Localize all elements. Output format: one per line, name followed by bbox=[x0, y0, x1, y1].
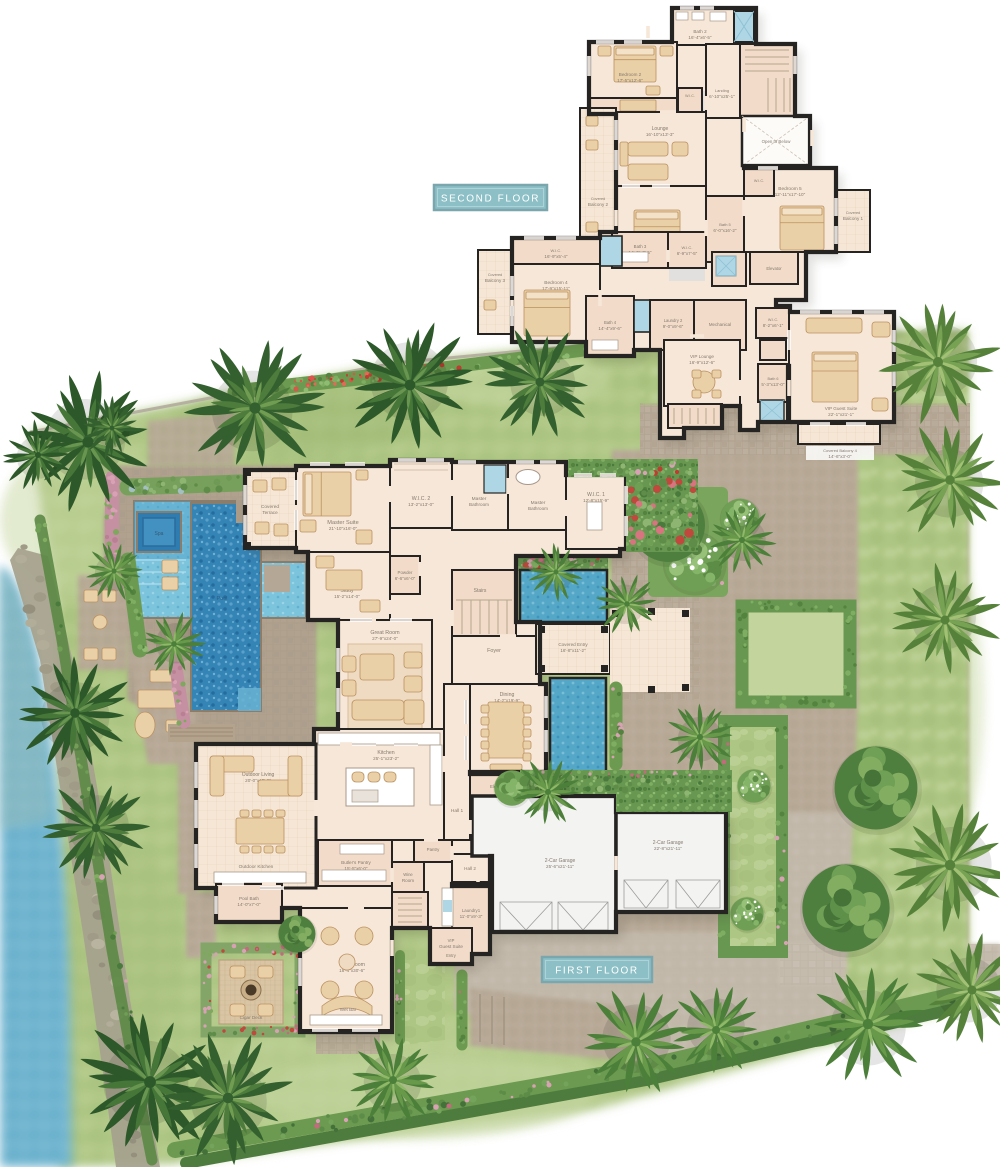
svg-text:Pool: Pool bbox=[216, 596, 227, 602]
svg-text:17'-5"x12'-6": 17'-5"x12'-6" bbox=[617, 78, 643, 83]
svg-text:Bath 2: Bath 2 bbox=[693, 29, 707, 34]
svg-text:Covered: Covered bbox=[591, 197, 605, 201]
svg-text:VIP: VIP bbox=[448, 938, 455, 943]
svg-text:Butler's Pantry: Butler's Pantry bbox=[341, 860, 371, 865]
svg-text:Spa: Spa bbox=[155, 531, 164, 537]
svg-text:14'-6"x3'-0": 14'-6"x3'-0" bbox=[828, 454, 852, 459]
svg-text:W.I.C.: W.I.C. bbox=[754, 179, 764, 183]
svg-text:Pool Bath: Pool Bath bbox=[239, 896, 259, 901]
svg-text:12'-11"x17'-10": 12'-11"x17'-10" bbox=[775, 192, 806, 197]
svg-text:Laundry 2: Laundry 2 bbox=[664, 318, 683, 323]
svg-text:Stairs: Stairs bbox=[474, 588, 487, 594]
svg-text:Wet Bar: Wet Bar bbox=[340, 1007, 357, 1012]
svg-text:22'-1"x21'-1": 22'-1"x21'-1" bbox=[828, 412, 854, 417]
svg-text:27'-9"x24'-0": 27'-9"x24'-0" bbox=[372, 636, 398, 641]
svg-text:Covered: Covered bbox=[488, 273, 502, 277]
svg-text:Hall 2: Hall 2 bbox=[464, 866, 476, 871]
svg-text:5'-3"x13'-0": 5'-3"x13'-0" bbox=[761, 382, 785, 387]
svg-text:11'-0"x9'-3": 11'-0"x9'-3" bbox=[460, 914, 483, 919]
svg-text:16'-8"x11'-2": 16'-8"x11'-2" bbox=[560, 648, 586, 653]
svg-text:13'-2"x13'-0": 13'-2"x13'-0" bbox=[408, 502, 434, 507]
svg-text:9'-0"x9'-6": 9'-0"x9'-6" bbox=[663, 324, 684, 329]
svg-text:Powder: Powder bbox=[398, 570, 413, 575]
svg-text:SECOND FLOOR: SECOND FLOOR bbox=[441, 194, 540, 205]
svg-text:8'-2"x6'-1": 8'-2"x6'-1" bbox=[763, 323, 784, 328]
svg-text:Room: Room bbox=[402, 878, 414, 883]
svg-text:14'-0"x7'-0": 14'-0"x7'-0" bbox=[237, 902, 261, 907]
svg-text:Open to Below: Open to Below bbox=[762, 139, 792, 144]
svg-text:15'-2"x14'-0": 15'-2"x14'-0" bbox=[334, 594, 360, 599]
svg-text:Pantry: Pantry bbox=[427, 847, 440, 852]
svg-text:Bathroom: Bathroom bbox=[469, 502, 489, 507]
svg-text:Wine: Wine bbox=[403, 872, 413, 877]
svg-text:Covered: Covered bbox=[846, 211, 860, 215]
svg-text:Bath 4: Bath 4 bbox=[604, 320, 617, 325]
svg-text:Bathroom: Bathroom bbox=[528, 506, 548, 511]
svg-text:Terrace: Terrace bbox=[262, 510, 278, 515]
svg-text:6'-0"x16'-2": 6'-0"x16'-2" bbox=[713, 228, 737, 233]
svg-text:6'-6"x6'-0": 6'-6"x6'-0" bbox=[395, 576, 416, 581]
svg-text:25'-1"x23'-2": 25'-1"x23'-2" bbox=[373, 756, 399, 761]
svg-text:14'-4"x9'-6": 14'-4"x9'-6" bbox=[598, 326, 622, 331]
svg-text:21'-10"x16'-0": 21'-10"x16'-0" bbox=[329, 526, 358, 531]
svg-text:W.I.C.: W.I.C. bbox=[551, 248, 562, 253]
svg-text:Balcony 1: Balcony 1 bbox=[843, 216, 864, 221]
svg-text:Laundry1: Laundry1 bbox=[462, 908, 481, 913]
svg-text:Bath 5: Bath 5 bbox=[719, 222, 731, 227]
svg-text:W.I.C.: W.I.C. bbox=[685, 94, 695, 98]
svg-text:Balcony 3: Balcony 3 bbox=[485, 278, 506, 283]
svg-text:16'-9"x5'-4": 16'-9"x5'-4" bbox=[544, 254, 568, 259]
svg-text:16'-9"x12'-6": 16'-9"x12'-6" bbox=[689, 360, 715, 365]
svg-text:22'-8"x21'-11": 22'-8"x21'-11" bbox=[654, 846, 682, 851]
svg-text:Foyer: Foyer bbox=[487, 648, 501, 654]
svg-text:W.I.C.: W.I.C. bbox=[768, 318, 778, 322]
svg-text:16'-10"x13'-3": 16'-10"x13'-3" bbox=[646, 132, 675, 137]
svg-text:VIP Lounge: VIP Lounge bbox=[690, 354, 714, 359]
svg-text:Elevator: Elevator bbox=[766, 266, 782, 271]
svg-text:Balcony 2: Balcony 2 bbox=[588, 202, 609, 207]
svg-text:Bath 3: Bath 3 bbox=[634, 244, 647, 249]
svg-text:Outdoor Kitchen: Outdoor Kitchen bbox=[239, 864, 274, 870]
svg-text:Covered Balcony 4: Covered Balcony 4 bbox=[823, 448, 858, 453]
svg-text:VIP Guest Suite: VIP Guest Suite bbox=[825, 406, 858, 411]
svg-text:Guest Suite: Guest Suite bbox=[439, 944, 463, 949]
svg-text:Bedroom 2: Bedroom 2 bbox=[619, 72, 642, 77]
svg-text:W.I.C.: W.I.C. bbox=[682, 245, 693, 250]
svg-text:Entry: Entry bbox=[446, 953, 457, 958]
svg-text:25'-6"x21'-11": 25'-6"x21'-11" bbox=[546, 864, 574, 869]
svg-text:Bath 6: Bath 6 bbox=[768, 377, 779, 381]
svg-text:Landing: Landing bbox=[715, 88, 729, 93]
svg-text:Hall 1: Hall 1 bbox=[451, 808, 464, 814]
svg-text:Mechanical: Mechanical bbox=[709, 322, 731, 327]
svg-text:16'-4"x6'-5": 16'-4"x6'-5" bbox=[688, 35, 712, 40]
svg-text:6'-9"x7'-5": 6'-9"x7'-5" bbox=[677, 251, 698, 256]
svg-text:6'-10"x25'-1": 6'-10"x25'-1" bbox=[709, 94, 735, 99]
svg-text:Covered Entry: Covered Entry bbox=[558, 642, 588, 647]
svg-text:FIRST FLOOR: FIRST FLOOR bbox=[555, 966, 639, 977]
